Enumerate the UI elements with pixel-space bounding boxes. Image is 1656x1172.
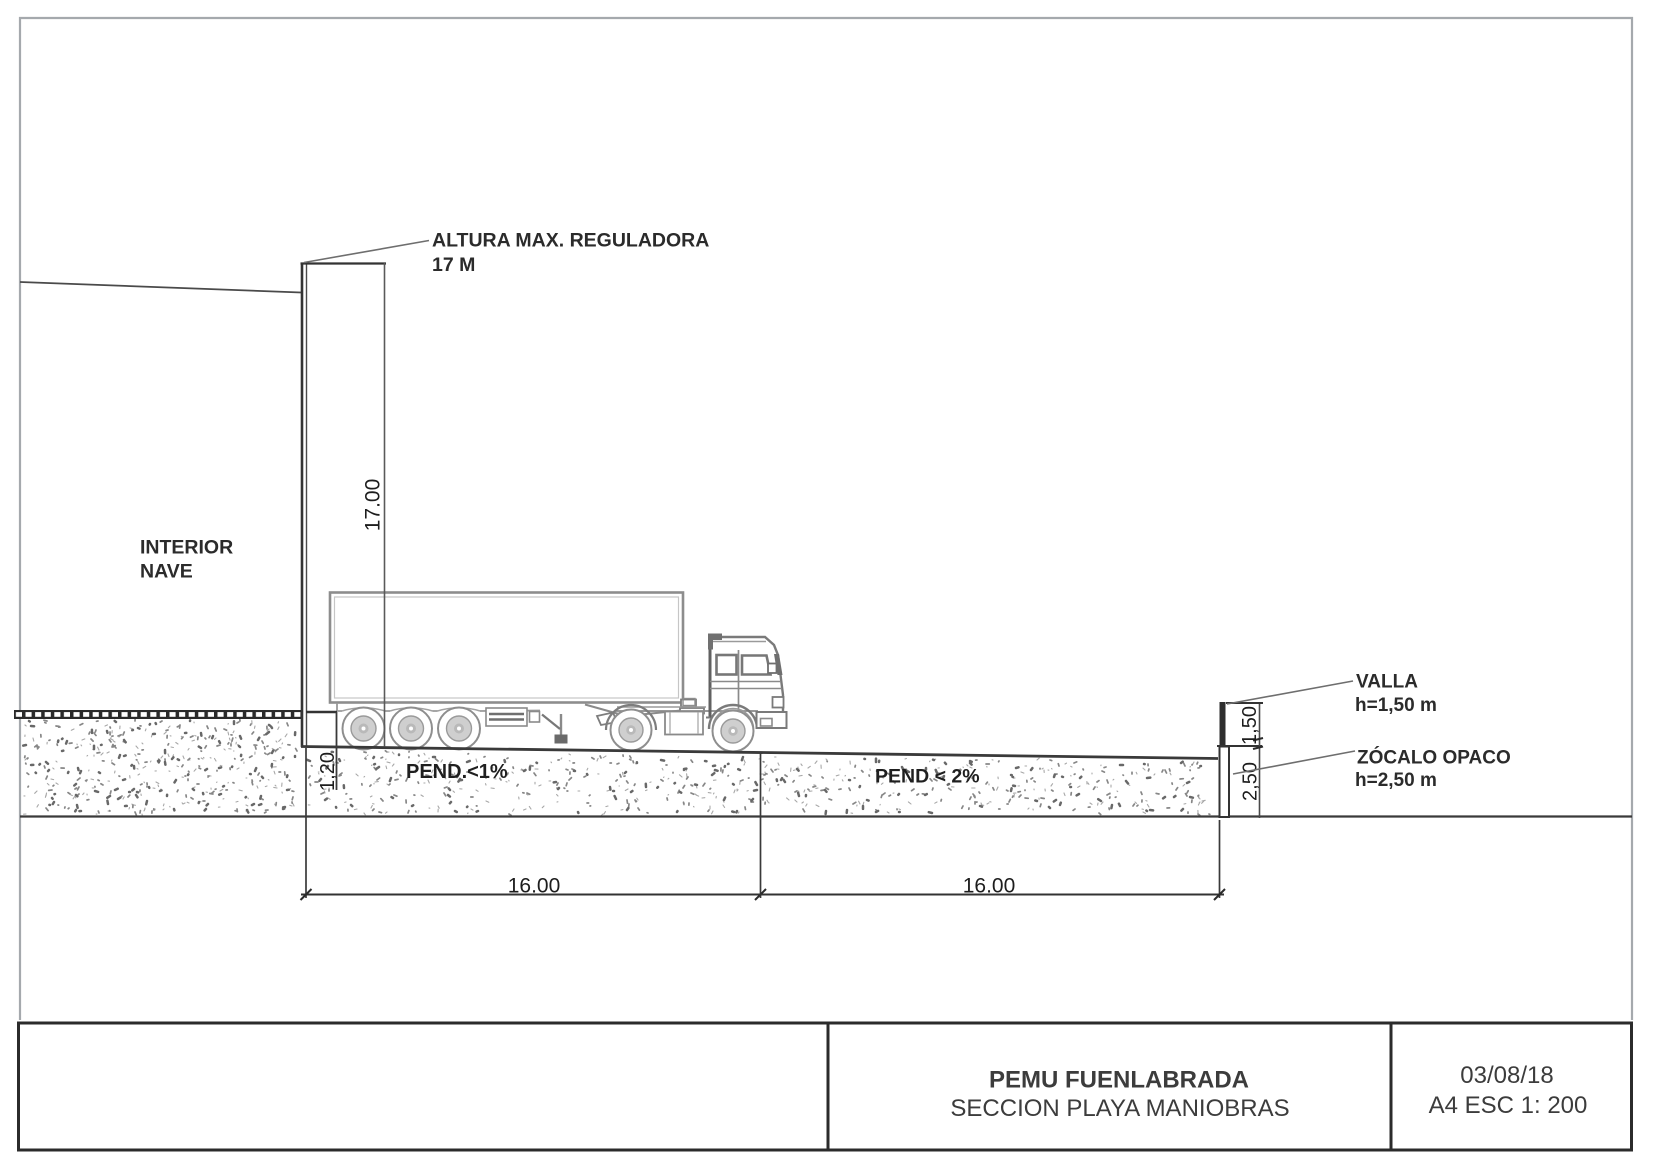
svg-text:h=1,50 m: h=1,50 m [1355,695,1437,716]
svg-text:1,20: 1,20 [317,752,339,791]
svg-text:SECCION PLAYA MANIOBRAS: SECCION PLAYA MANIOBRAS [950,1095,1289,1122]
svg-text:NAVE: NAVE [140,561,193,583]
svg-text:16.00: 16.00 [963,875,1016,898]
svg-text:16.00: 16.00 [508,875,561,898]
svg-text:h=2,50 m: h=2,50 m [1355,770,1437,791]
svg-text:2,50: 2,50 [1240,762,1262,801]
svg-text:PEND < 2%: PEND < 2% [875,766,980,788]
svg-text:A4 ESC 1: 200: A4 ESC 1: 200 [1429,1092,1588,1119]
svg-text:PEMU FUENLABRADA: PEMU FUENLABRADA [989,1067,1249,1094]
svg-text:ZÓCALO OPACO: ZÓCALO OPACO [1357,747,1511,769]
svg-text:1,50: 1,50 [1239,706,1261,745]
svg-text:ALTURA MAX. REGULADORA: ALTURA MAX. REGULADORA [432,230,709,252]
svg-text:17 M: 17 M [432,254,475,276]
svg-text:03/08/18: 03/08/18 [1460,1062,1553,1089]
svg-text:PEND.<1%: PEND.<1% [406,761,508,783]
svg-text:17.00: 17.00 [362,479,385,532]
svg-text:VALLA: VALLA [1356,672,1418,693]
svg-text:INTERIOR: INTERIOR [140,537,233,559]
